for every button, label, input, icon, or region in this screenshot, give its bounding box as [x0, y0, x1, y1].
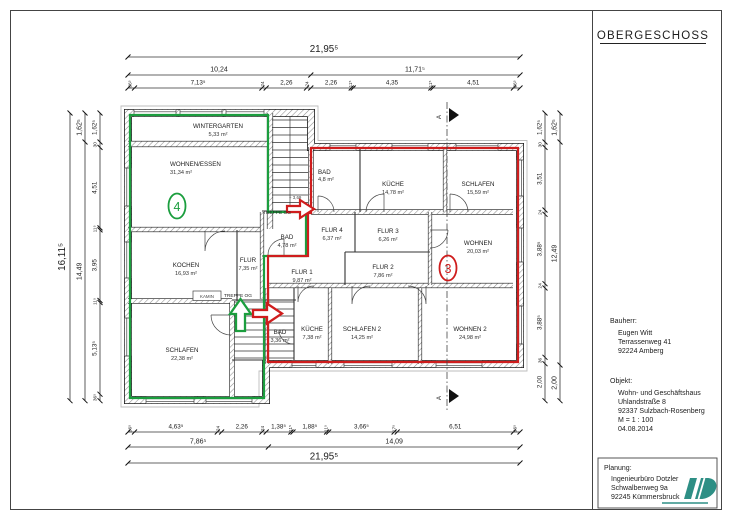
room-name: SCHLAFEN 2 — [343, 326, 382, 333]
room-name: FLUR — [240, 257, 257, 264]
dim: 21,95⁵ — [310, 452, 339, 463]
dim: 2,00 — [552, 376, 559, 390]
treppe-label-bottom: TREPPE OG — [224, 293, 252, 299]
planung-label: Planung: — [604, 465, 632, 472]
dim: 3,95 — [92, 259, 99, 272]
bauherr-line: 92224 Amberg — [618, 348, 664, 355]
dim: 3,51 — [537, 172, 544, 185]
dimensions-left: 16,11⁵ 1,62⁵ 14,49 1,62⁵ 30 4,51 11⁵ 3,9… — [57, 113, 100, 401]
dim: 4,51 — [467, 80, 480, 87]
dim: 24 — [215, 426, 221, 432]
dim: 4,51 — [92, 181, 99, 194]
room-area: 14,25 m² — [351, 335, 373, 341]
room-area: 14,78 m² — [382, 190, 404, 196]
dim: 36⁵ — [513, 425, 519, 432]
dim: 4,63⁵ — [168, 424, 183, 431]
dim: 17⁵ — [392, 425, 398, 432]
dim: 11⁵ — [93, 298, 99, 305]
room-name: WOHNEN — [464, 240, 492, 247]
objekt-line: 04.08.2014 — [618, 426, 653, 433]
dim: 5,13⁵ — [92, 341, 99, 356]
dim: 11,71⁵ — [405, 67, 425, 74]
dim: 36⁵ — [127, 425, 133, 432]
room-area: 7,38 m² — [303, 335, 322, 341]
room-area: 7,86 m² — [374, 273, 393, 279]
dim: 2,26 — [325, 80, 338, 87]
planung-block: Planung: Ingenieurbüro Dotzler Schwalben… — [598, 458, 717, 508]
dim: 1,62⁵ — [552, 119, 559, 136]
planung-line: 92245 Kümmersbruck — [611, 494, 680, 501]
room-area: 4,8 m² — [318, 177, 334, 183]
room-name: BAD — [281, 234, 294, 241]
dim: 11⁵ — [348, 81, 354, 88]
objekt-line: Uhlandstraße 8 — [618, 399, 666, 406]
dim: 3,88⁵ — [537, 241, 544, 256]
dim: 3,88⁵ — [537, 315, 544, 330]
dim: 4,35 — [386, 80, 399, 87]
dimensions-bottom: 36⁵ 4,63⁵ 24 2,26 24 1,38⁵ 11⁵ 1,88⁵ 11⁵… — [127, 424, 520, 464]
title-block: OBERGESCHOSS Bauherr: Eugen Witt Terrass… — [597, 30, 717, 508]
objekt-block: Objekt: Wohn- und Geschäftshaus Uhlandst… — [610, 378, 705, 433]
dim: 1,62⁵ — [537, 120, 544, 135]
dim: 12,49 — [552, 245, 559, 263]
room-area: 9,87 m² — [293, 278, 312, 284]
bauherr-block: Bauherr: Eugen Witt Terrassenweg 41 9222… — [610, 318, 671, 355]
dim: 7,86⁵ — [190, 439, 207, 446]
red-right-arrow-bottom-icon — [253, 304, 282, 324]
dim: 7,13⁵ — [191, 80, 206, 87]
dim: 16,11⁵ — [57, 243, 68, 271]
dimensions-right: 1,62⁵ 30 3,51 24 3,88⁵ 24 3,88⁵ 36 2,00 … — [537, 113, 561, 401]
dim: 2,00 — [537, 375, 544, 388]
dim: 1,88⁵ — [302, 424, 317, 431]
room-name: SCHLAFEN — [461, 181, 494, 188]
dim: 36⁵ — [513, 80, 519, 87]
room-area: 16,93 m² — [175, 271, 197, 277]
dim: 24 — [538, 209, 544, 215]
dim: 6,51 — [449, 424, 462, 431]
objekt-label: Objekt: — [610, 378, 632, 385]
room-area: 24,98 m² — [459, 335, 481, 341]
dim: 21,95⁵ — [310, 44, 339, 55]
dim: 14,09 — [385, 439, 403, 446]
room-area: 6,37 m² — [323, 236, 342, 242]
section-label-top: A — [436, 114, 443, 119]
dim: 10,24 — [210, 67, 228, 74]
dim: 36⁵ — [93, 394, 99, 401]
section-arrow-top-icon — [449, 108, 459, 122]
room-name: FLUR 4 — [321, 227, 343, 234]
planung-line: Schwalbenweg 9a — [611, 485, 668, 492]
dim: 24 — [260, 81, 266, 87]
level-marker: + 3,69 — [289, 195, 302, 200]
dim: 30 — [93, 142, 99, 148]
unit-4-number: 4 — [174, 200, 181, 214]
room-area: 4,78 m² — [278, 243, 297, 249]
room-name: FLUR 1 — [291, 269, 313, 276]
planung-line: Ingenieurbüro Dotzler — [611, 476, 679, 483]
room-name: KOCHEN — [173, 262, 199, 269]
dim: 30 — [538, 142, 544, 148]
treppe-label-top: TREPPE OG — [263, 210, 291, 216]
dim: 36⁵ — [127, 80, 133, 87]
kamin-label: KAMIN — [200, 294, 214, 299]
room-name: WOHNEN 2 — [453, 326, 487, 333]
room-area: 22,38 m² — [171, 356, 193, 362]
dim: 14,49 — [77, 263, 84, 281]
dim: 11⁵ — [288, 425, 294, 432]
objekt-line: M = 1 : 100 — [618, 417, 653, 424]
room-name: KÜCHE — [301, 326, 323, 333]
sheet-border — [11, 11, 722, 510]
dim: 11⁵ — [324, 425, 330, 432]
dim: 36 — [538, 358, 544, 364]
room-area: 31,34 m² — [170, 170, 192, 176]
room-area: 6,26 m² — [379, 237, 398, 243]
dimensions-top: 21,95⁵ 10,24 11,71⁵ 36⁵ 7,13⁵ 24 2,26 24… — [127, 44, 520, 88]
section-arrow-bottom-icon — [449, 389, 459, 403]
bauherr-line: Terrassenweg 41 — [618, 339, 671, 346]
room-name: FLUR 3 — [377, 228, 399, 235]
bauherr-line: Eugen Witt — [618, 330, 652, 337]
section-label-bottom: A — [436, 395, 443, 400]
dim: 11⁵ — [93, 225, 99, 232]
dim: 3,66⁵ — [354, 424, 369, 431]
objekt-line: Wohn- und Geschäftshaus — [618, 390, 701, 397]
room-name: KÜCHE — [382, 181, 404, 188]
dim: 1,62⁵ — [77, 119, 84, 136]
room-name: SCHLAFEN — [165, 347, 198, 354]
room-name: FLUR 2 — [372, 264, 394, 271]
unit-3-number: 3 — [445, 262, 452, 276]
dim: 1,38⁵ — [271, 424, 286, 431]
room-area: 3,36 m² — [271, 338, 290, 344]
dim: 24 — [260, 426, 266, 432]
page-title: OBERGESCHOSS — [597, 30, 709, 42]
dim: 24 — [538, 283, 544, 289]
dim: 11⁵ — [428, 81, 434, 88]
dim: 1,62⁵ — [92, 120, 99, 135]
room-area: 20,03 m² — [467, 249, 489, 255]
dim: 2,26 — [236, 424, 249, 431]
stairs-top — [272, 116, 308, 207]
room-name: BAD — [318, 169, 331, 176]
objekt-line: 92337 Sulzbach-Rosenberg — [618, 408, 705, 415]
room-area: 5,33 m² — [209, 132, 228, 138]
room-name: BAD — [274, 329, 287, 336]
floorplan-drawing: A A 4 3 WINTERGARTEN 5,33 m² WOHNEN/ESSE… — [0, 0, 732, 520]
dim: 2,26 — [280, 80, 293, 87]
room-name: WINTERGARTEN — [193, 123, 243, 130]
bauherr-label: Bauherr: — [610, 318, 637, 325]
dim: 24 — [305, 81, 311, 87]
room-area: 15,59 m² — [467, 190, 489, 196]
room-area: 7,35 m² — [239, 266, 258, 272]
room-name: WOHNEN/ESSEN — [170, 161, 221, 168]
